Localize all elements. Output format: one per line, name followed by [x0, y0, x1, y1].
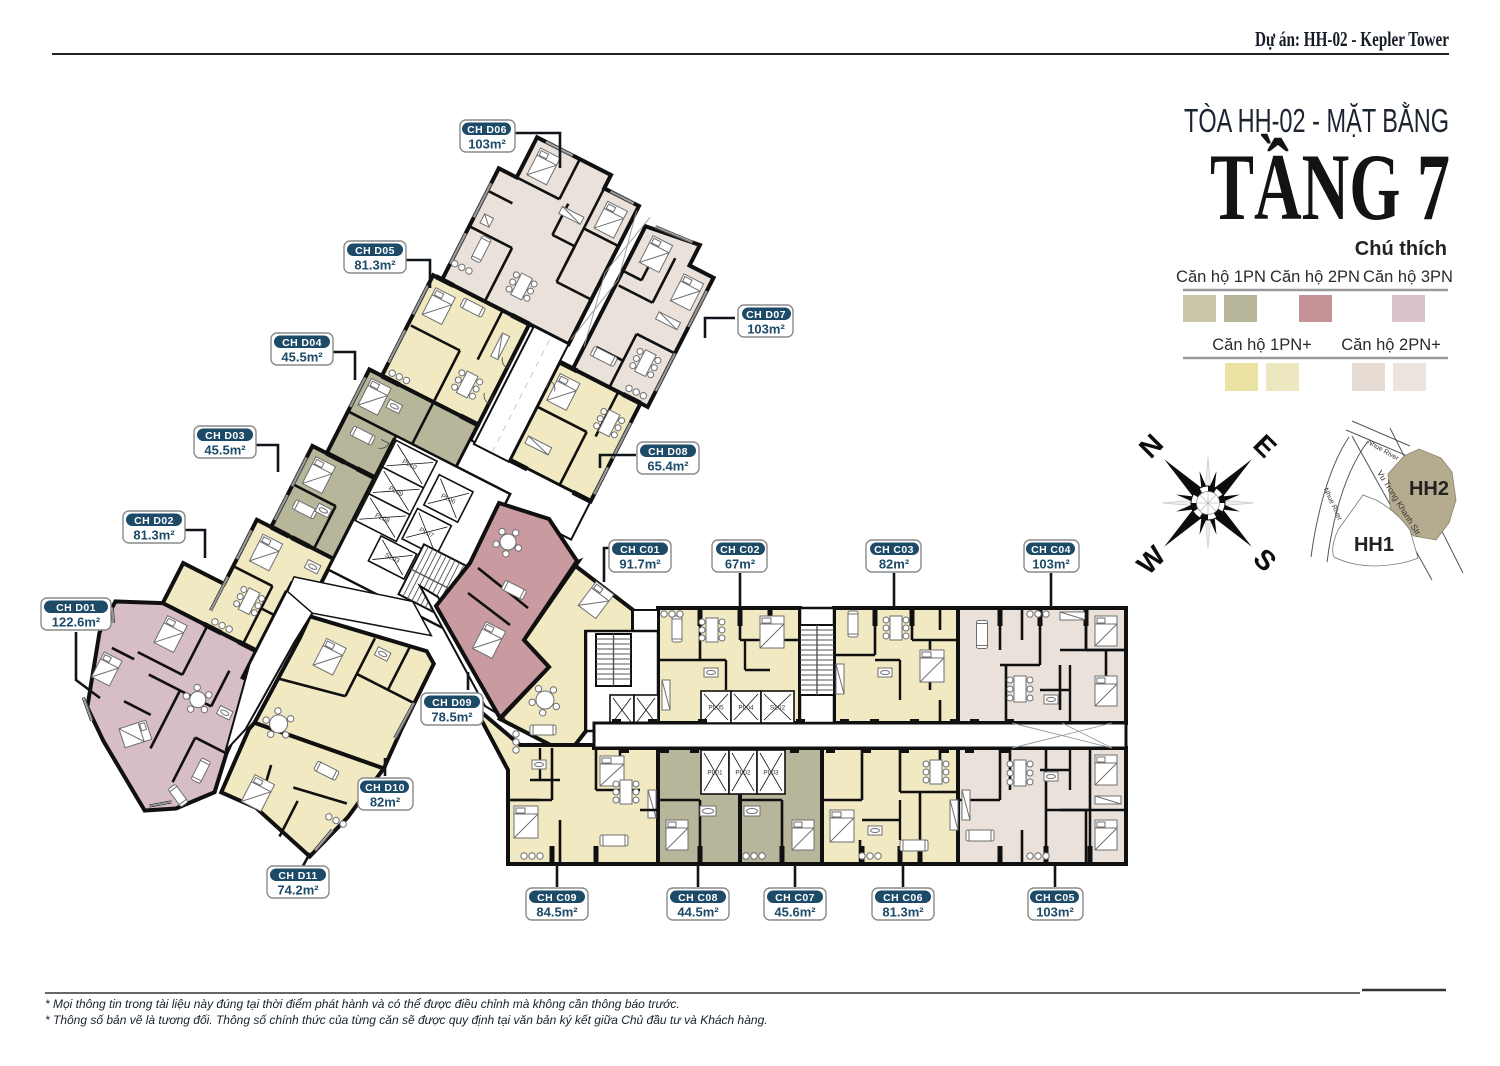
- svg-text:CH D02: CH D02: [134, 515, 174, 527]
- svg-text:* Mọi thông tin trong tài liệu: * Mọi thông tin trong tài liệu này đúng …: [45, 997, 680, 1011]
- svg-text:CH D01: CH D01: [56, 602, 96, 614]
- svg-text:Dự án: HH-02 - Kepler Tower: Dự án: HH-02 - Kepler Tower: [1255, 27, 1449, 51]
- svg-text:67m²: 67m²: [725, 557, 756, 572]
- svg-text:CH D08: CH D08: [648, 446, 688, 458]
- svg-text:PL02: PL02: [735, 770, 751, 777]
- svg-text:65.4m²: 65.4m²: [647, 459, 689, 474]
- svg-text:91.7m²: 91.7m²: [619, 557, 661, 572]
- svg-text:Căn hộ 1PN: Căn hộ 1PN: [1176, 268, 1266, 286]
- svg-text:84.5m²: 84.5m²: [536, 905, 578, 920]
- svg-text:CH D11: CH D11: [278, 870, 317, 882]
- svg-text:PL03: PL03: [763, 770, 779, 777]
- svg-text:CH C07: CH C07: [775, 892, 815, 904]
- svg-text:TẦNG 7: TẦNG 7: [1210, 134, 1450, 240]
- svg-text:CH C03: CH C03: [874, 544, 914, 556]
- svg-text:Căn hộ 1PN+: Căn hộ 1PN+: [1212, 336, 1312, 354]
- svg-text:44.5m²: 44.5m²: [677, 905, 719, 920]
- svg-text:SL02: SL02: [770, 705, 786, 712]
- svg-text:81.3m²: 81.3m²: [354, 258, 396, 273]
- svg-text:PL05: PL05: [708, 705, 724, 712]
- svg-text:103m²: 103m²: [747, 322, 785, 337]
- svg-text:CH D09: CH D09: [432, 697, 472, 709]
- svg-text:CH D05: CH D05: [355, 245, 395, 257]
- svg-text:45.5m²: 45.5m²: [281, 350, 323, 365]
- svg-text:74.2m²: 74.2m²: [277, 883, 319, 898]
- svg-text:81.3m²: 81.3m²: [133, 528, 175, 543]
- svg-text:CH D06: CH D06: [467, 124, 507, 136]
- svg-text:CH C02: CH C02: [720, 544, 760, 556]
- svg-text:45.6m²: 45.6m²: [774, 905, 816, 920]
- svg-text:82m²: 82m²: [370, 795, 401, 810]
- svg-text:CH C06: CH C06: [883, 892, 923, 904]
- svg-text:CH C05: CH C05: [1035, 892, 1075, 904]
- svg-text:HH1: HH1: [1354, 534, 1394, 556]
- svg-text:HH2: HH2: [1409, 478, 1449, 500]
- svg-text:122.6m²: 122.6m²: [52, 615, 101, 630]
- svg-text:45.5m²: 45.5m²: [204, 443, 246, 458]
- svg-text:CH D10: CH D10: [365, 782, 405, 794]
- svg-text:CH C09: CH C09: [537, 892, 577, 904]
- svg-text:CH D04: CH D04: [282, 337, 322, 349]
- svg-text:Căn hộ 3PN: Căn hộ 3PN: [1363, 268, 1453, 286]
- svg-text:CH C01: CH C01: [620, 544, 660, 556]
- svg-text:CH C04: CH C04: [1031, 544, 1071, 556]
- svg-text:CH C08: CH C08: [678, 892, 718, 904]
- svg-text:Chú thích: Chú thích: [1355, 238, 1447, 260]
- svg-text:Căn hộ 2PN+: Căn hộ 2PN+: [1341, 336, 1441, 354]
- svg-text:CH D03: CH D03: [205, 430, 245, 442]
- svg-text:82m²: 82m²: [879, 557, 910, 572]
- svg-text:PL04: PL04: [738, 705, 754, 712]
- svg-text:103m²: 103m²: [468, 137, 506, 152]
- svg-text:103m²: 103m²: [1032, 557, 1070, 572]
- svg-text:PL01: PL01: [707, 770, 723, 777]
- svg-text:Căn hộ 2PN: Căn hộ 2PN: [1270, 268, 1360, 286]
- svg-text:* Thông số bản vẽ là tương đối: * Thông số bản vẽ là tương đối. Thông số…: [45, 1013, 768, 1027]
- svg-text:103m²: 103m²: [1036, 905, 1074, 920]
- svg-text:81.3m²: 81.3m²: [882, 905, 924, 920]
- svg-text:78.5m²: 78.5m²: [431, 710, 473, 725]
- svg-text:CH D07: CH D07: [746, 309, 786, 321]
